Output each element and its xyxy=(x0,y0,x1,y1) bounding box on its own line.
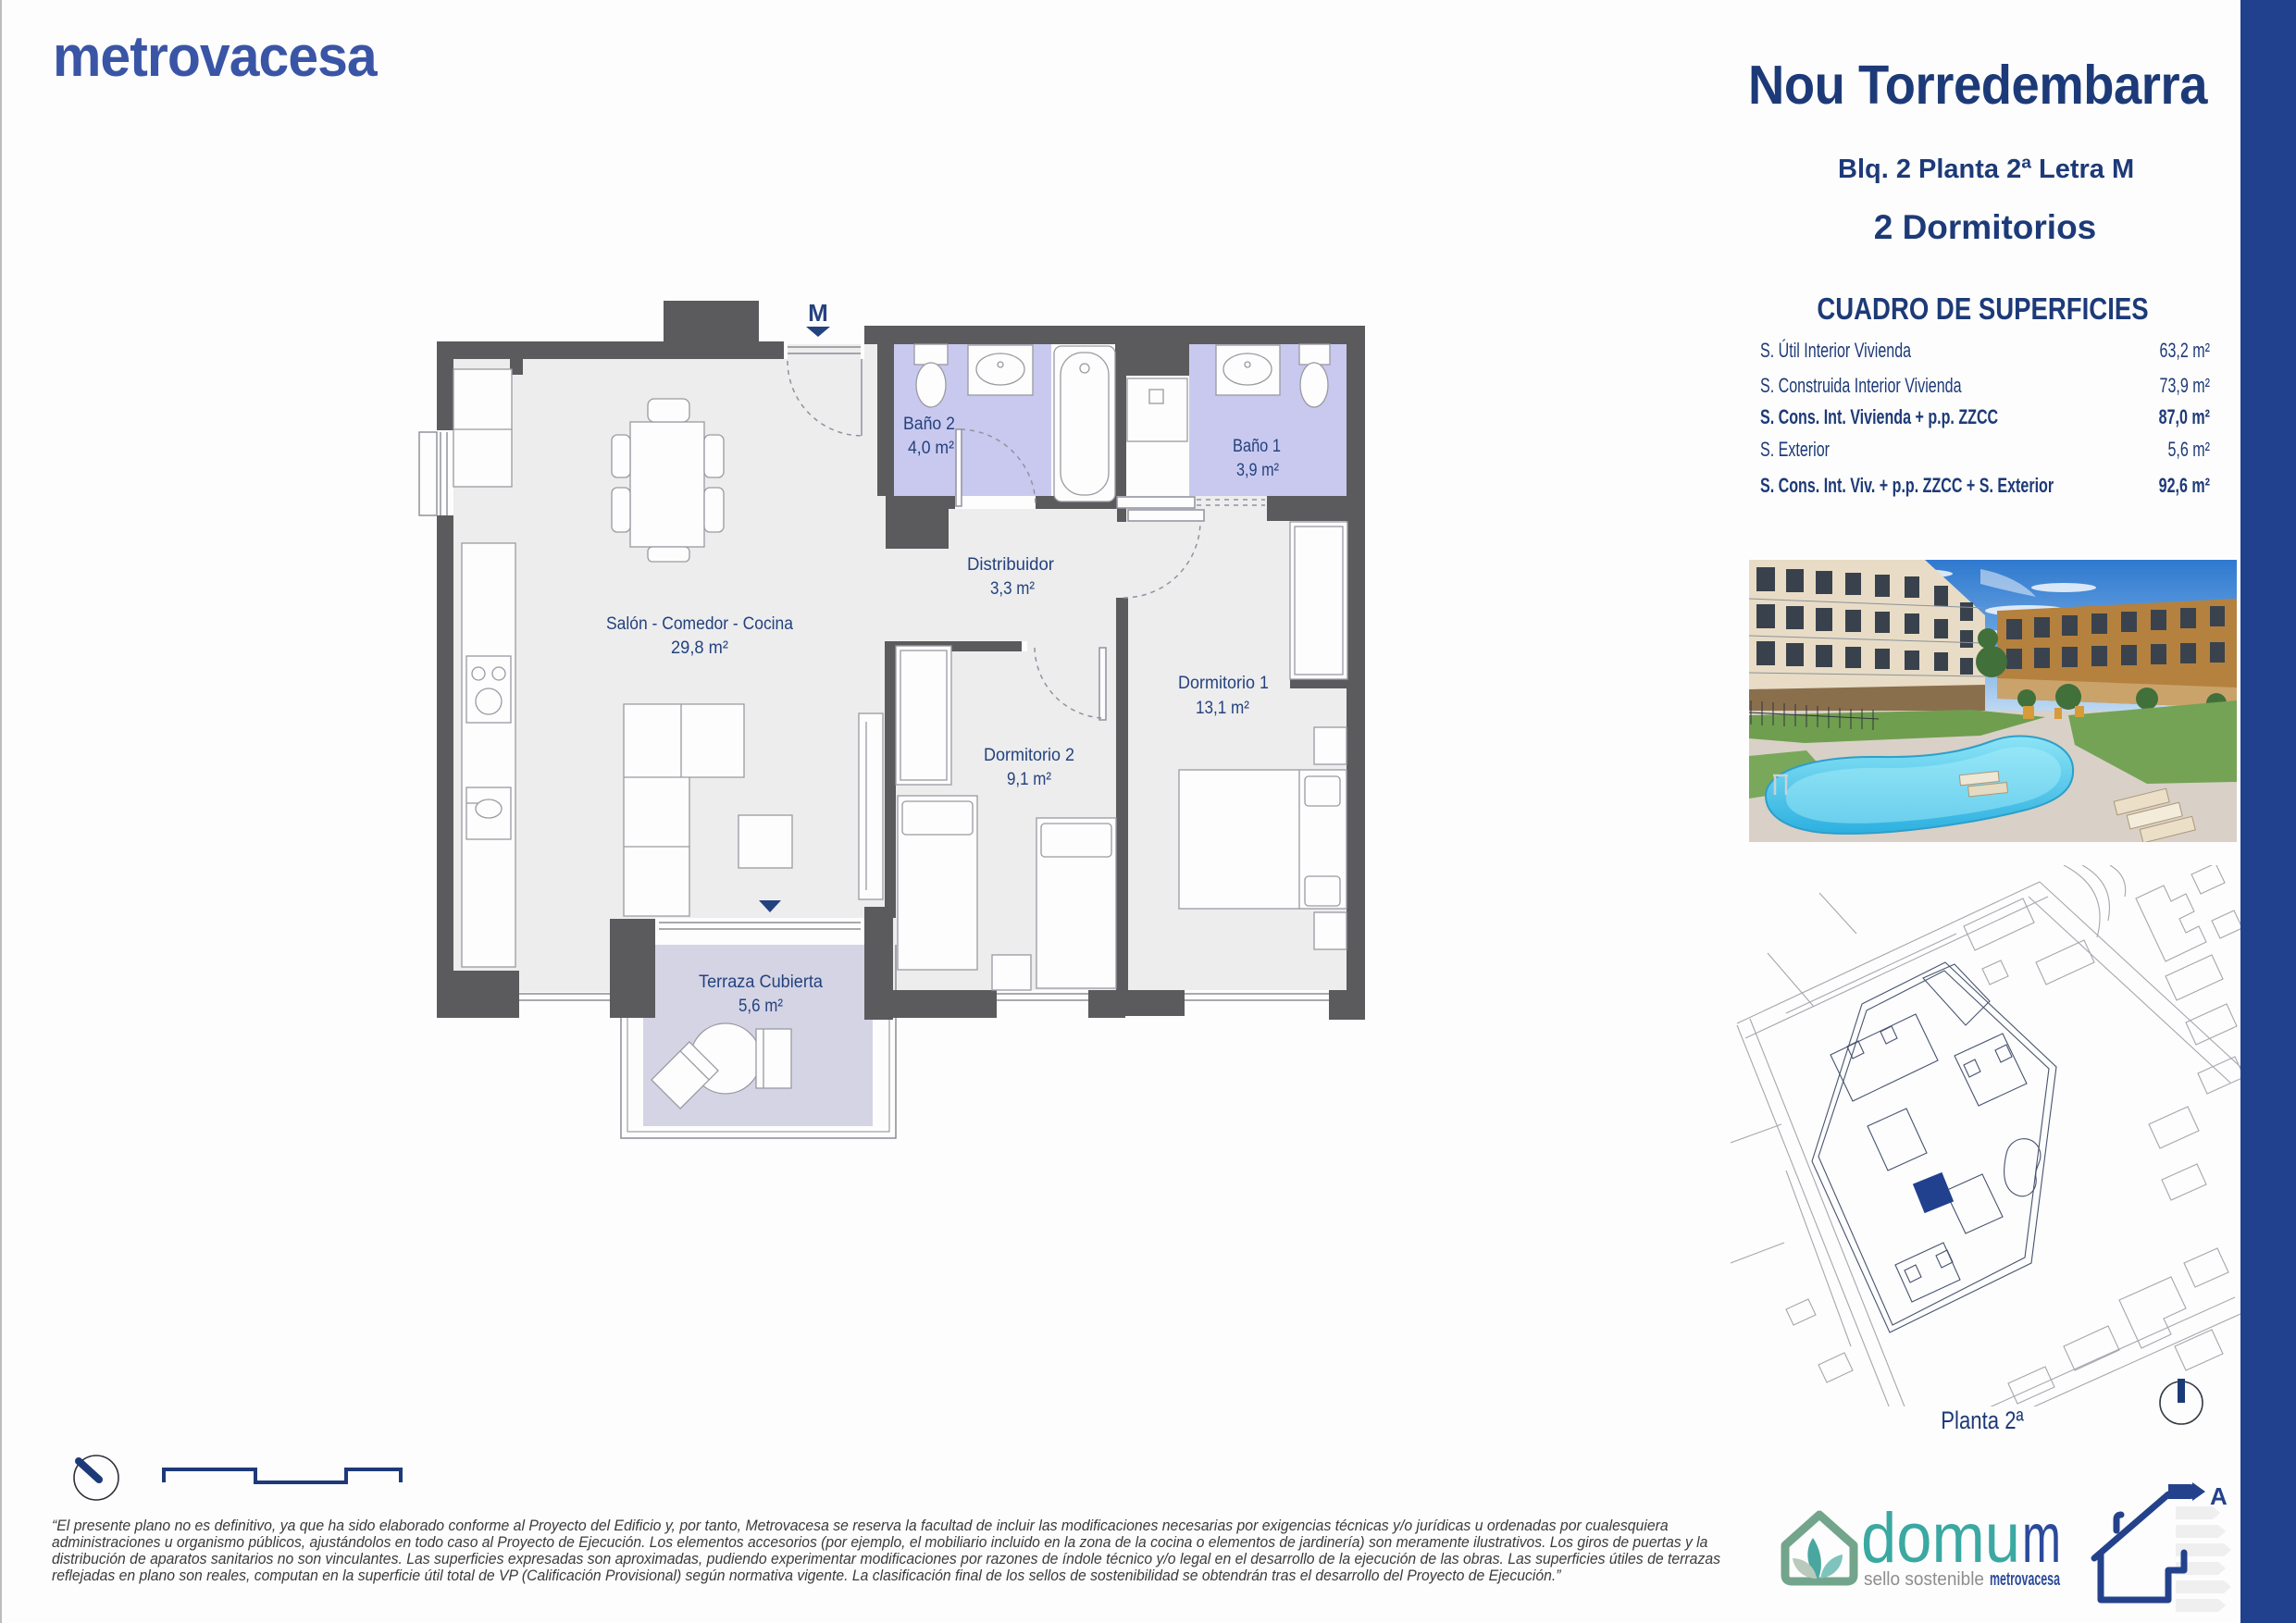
svg-text:Dormitorio 2: Dormitorio 2 xyxy=(984,746,1074,765)
svg-text:A: A xyxy=(2210,1482,2228,1510)
svg-text:domu: domu xyxy=(1861,1499,2020,1578)
svg-text:3,3 m²: 3,3 m² xyxy=(990,579,1035,599)
svg-text:29,8 m²: 29,8 m² xyxy=(671,638,728,658)
svg-text:Baño 1: Baño 1 xyxy=(1233,437,1281,456)
svg-text:sello sostenible: sello sostenible xyxy=(1864,1569,1984,1590)
svg-text:13,1 m²: 13,1 m² xyxy=(1196,699,1249,718)
svg-text:Dormitorio 1: Dormitorio 1 xyxy=(1178,674,1269,693)
svg-text:Baño 2: Baño 2 xyxy=(903,415,955,434)
svg-text:m: m xyxy=(2022,1499,2061,1578)
svg-text:4,0 m²: 4,0 m² xyxy=(908,439,954,458)
svg-text:metrovacesa: metrovacesa xyxy=(1990,1569,2061,1590)
svg-text:M: M xyxy=(808,299,828,327)
svg-text:Salón - Comedor - Cocina: Salón - Comedor - Cocina xyxy=(606,614,793,634)
svg-text:9,1 m²: 9,1 m² xyxy=(1007,770,1051,789)
svg-text:3,9 m²: 3,9 m² xyxy=(1236,461,1279,480)
svg-text:Terraza Cubierta: Terraza Cubierta xyxy=(699,973,823,992)
svg-text:Distribuidor: Distribuidor xyxy=(967,555,1055,575)
svg-text:5,6 m²: 5,6 m² xyxy=(738,997,783,1016)
